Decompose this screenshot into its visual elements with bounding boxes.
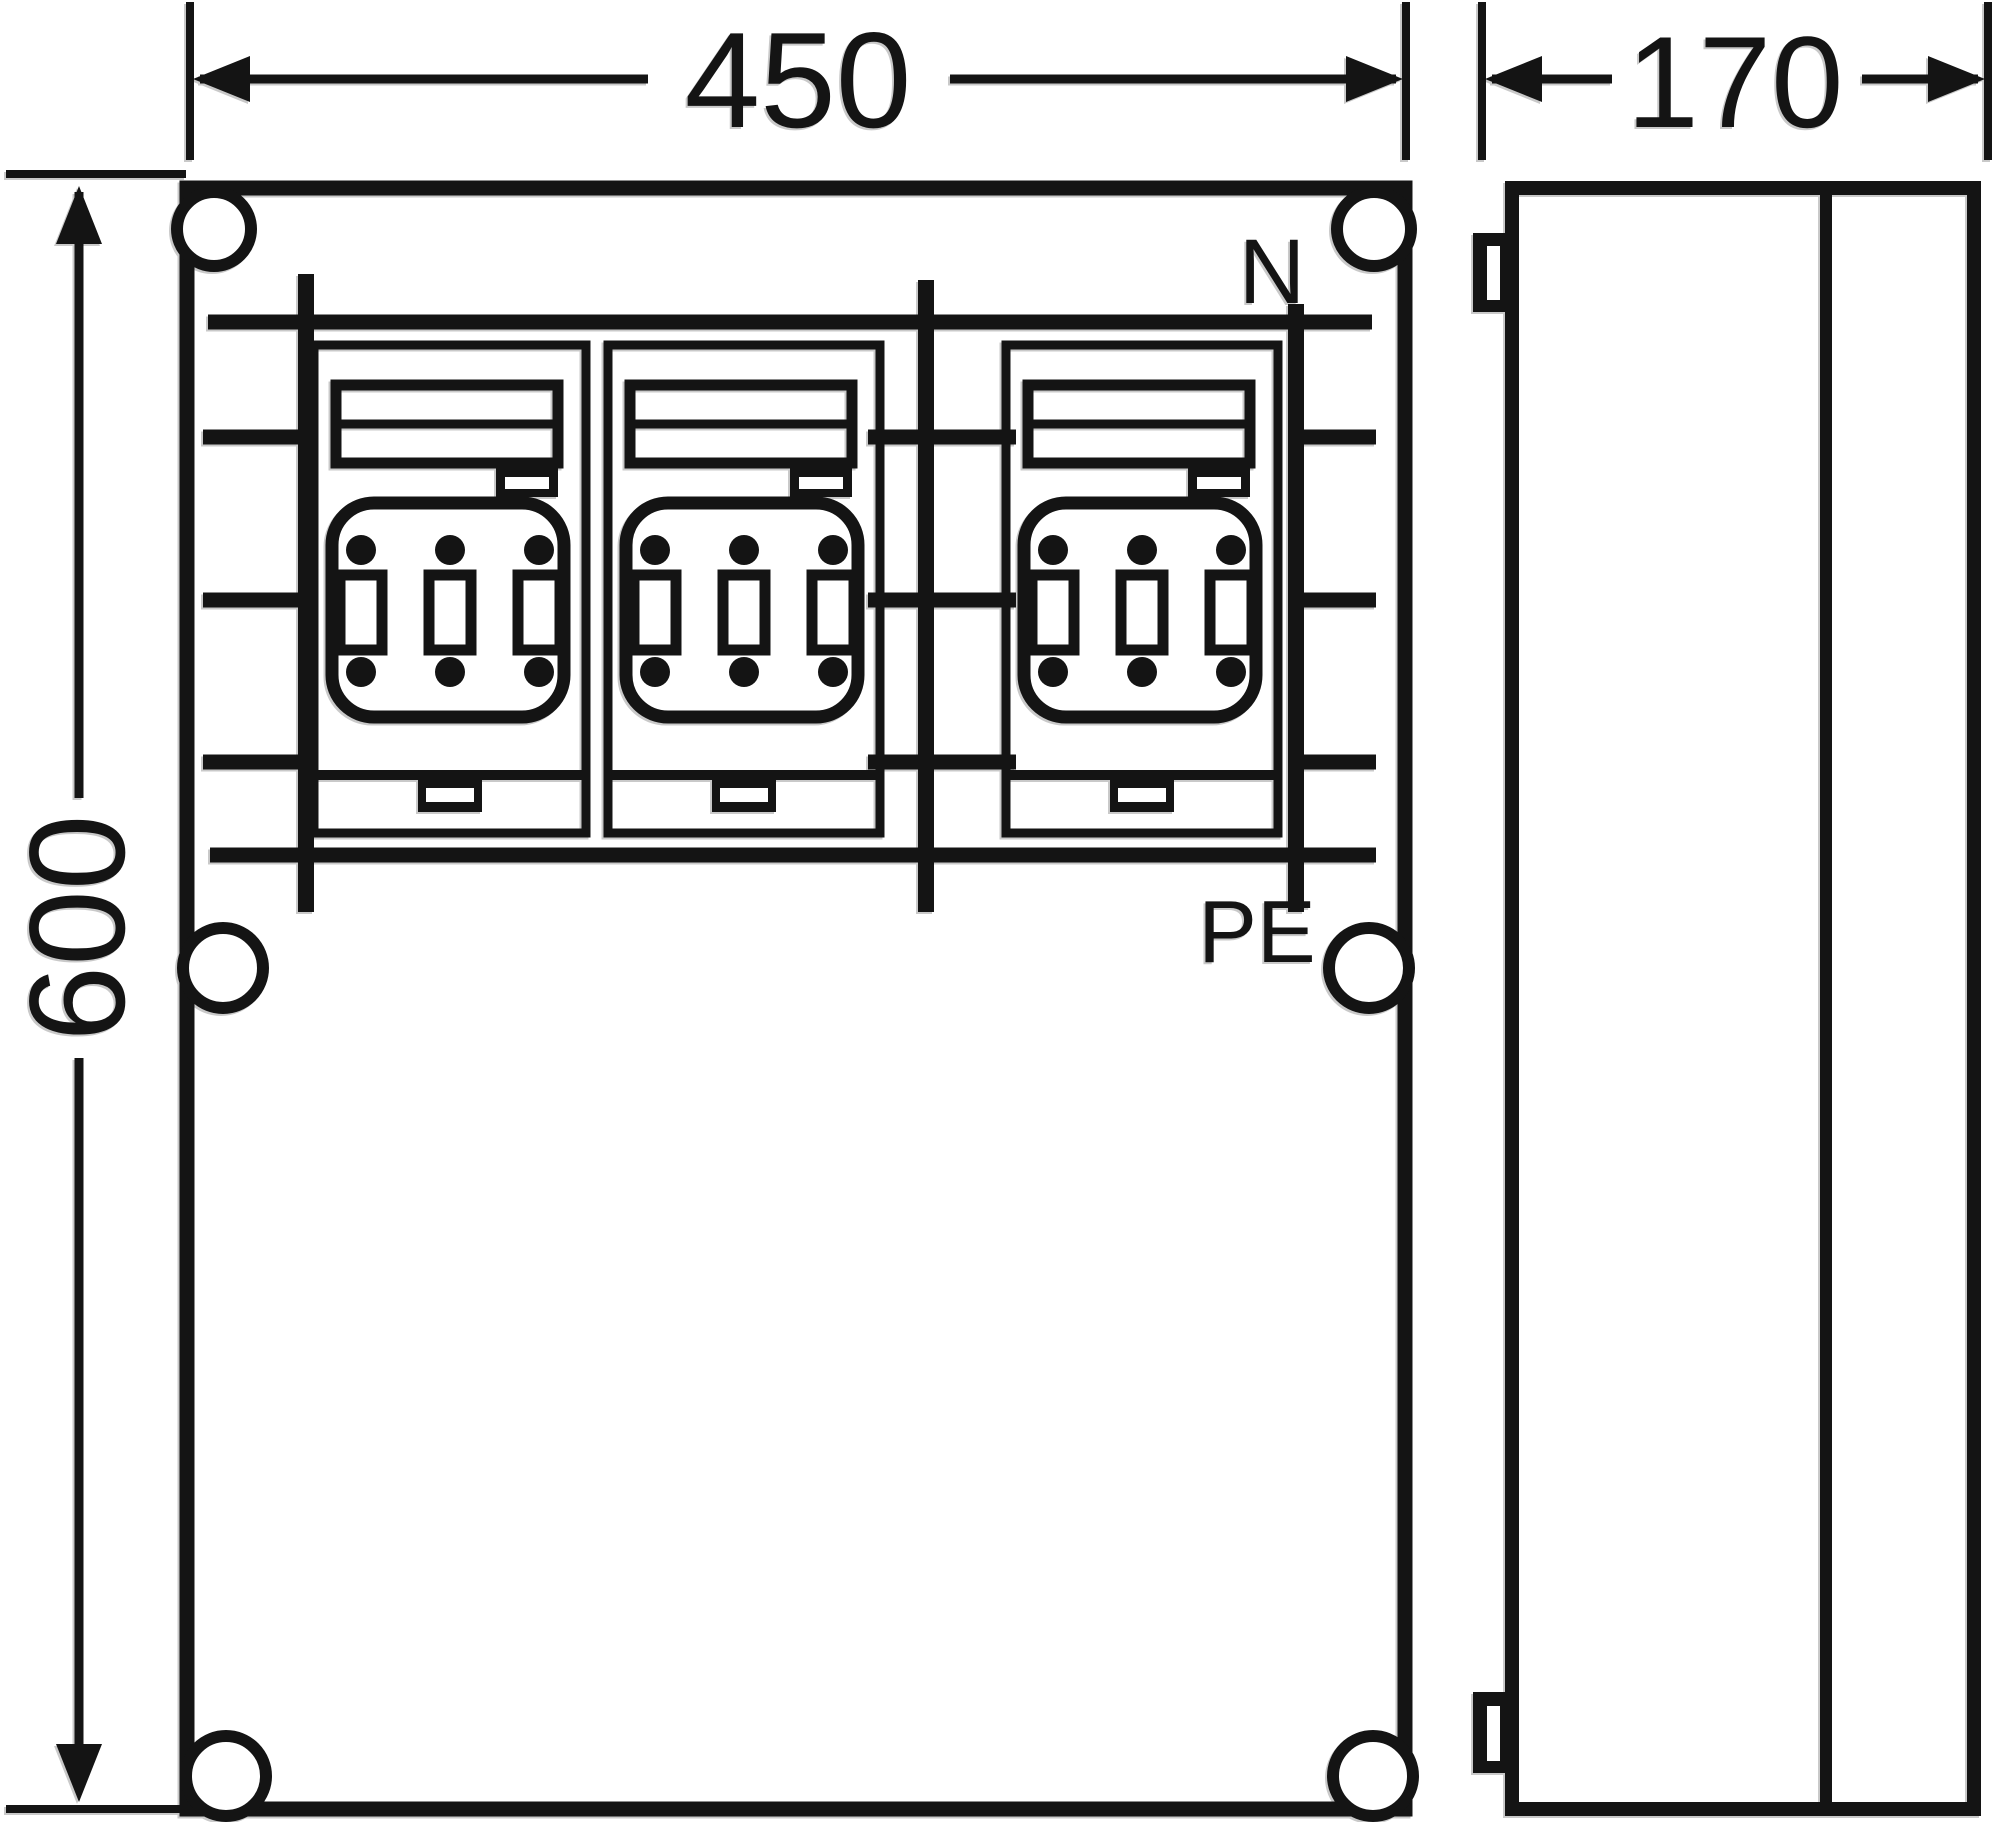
- fuse-slot: [518, 575, 560, 650]
- contact-dot: [346, 657, 376, 687]
- contact-dot: [1127, 535, 1157, 565]
- contact-dot: [524, 657, 554, 687]
- contact-dot: [640, 657, 670, 687]
- side-view-outline: [1512, 188, 1974, 1809]
- contact-dot: [1216, 535, 1246, 565]
- mounting-hole-top-right: [1337, 192, 1411, 266]
- mounting-hole-bottom-left: [186, 1736, 266, 1816]
- dimension-width: 450: [190, 2, 1406, 160]
- fuse-slot: [340, 575, 382, 650]
- contact-dot: [524, 535, 554, 565]
- front-view-outline: [187, 188, 1405, 1809]
- dimension-width-label: 450: [685, 4, 912, 156]
- contact-dot: [818, 535, 848, 565]
- contact-dot: [640, 535, 670, 565]
- contact-dot: [1038, 535, 1068, 565]
- contact-dot: [729, 535, 759, 565]
- drawing-sheet: 450 170 600: [0, 0, 2000, 1822]
- arrow-right-icon: [1928, 56, 1985, 102]
- contact-dot: [435, 657, 465, 687]
- pe-terminal-label: PE: [1198, 882, 1315, 981]
- fuse-slot: [1032, 575, 1074, 650]
- mounting-hole-bottom-right: [1333, 1736, 1413, 1816]
- arrow-down-icon: [56, 1744, 102, 1802]
- cover-latch-slot: [505, 477, 549, 489]
- dimension-depth-label: 170: [1627, 9, 1844, 155]
- side-latch-top-slot: [1487, 246, 1500, 300]
- mounting-hole-middle-left: [183, 928, 263, 1008]
- side-latch-bottom-slot: [1487, 1706, 1500, 1761]
- contact-dot: [1127, 657, 1157, 687]
- dimension-height-label: 600: [1, 815, 153, 1042]
- mounting-hole-middle-right: [1329, 928, 1409, 1008]
- mounting-foot-slot: [426, 788, 474, 802]
- dimension-depth: 170: [1482, 2, 1988, 160]
- contact-dot: [1038, 657, 1068, 687]
- cover-screws: [177, 192, 1413, 1816]
- fuse-slot: [1210, 575, 1252, 650]
- contact-dot: [435, 535, 465, 565]
- arrow-left-icon: [193, 56, 250, 102]
- arrow-left-icon: [1485, 56, 1542, 102]
- fuse-switch-module: [314, 345, 586, 833]
- contact-dot: [818, 657, 848, 687]
- side-view: [1473, 188, 1974, 1809]
- contact-dot: [346, 535, 376, 565]
- fuse-switch-module: [608, 345, 880, 833]
- cover-latch-slot: [1197, 477, 1241, 489]
- neutral-terminal-label: N: [1239, 221, 1305, 323]
- mounting-foot-slot: [720, 788, 768, 802]
- cover-latch-slot: [799, 477, 843, 489]
- contact-dot: [729, 657, 759, 687]
- arrow-right-icon: [1346, 56, 1403, 102]
- fuse-switch-module: [1006, 345, 1278, 833]
- dimension-height: 600: [1, 174, 186, 1809]
- mounting-hole-top-left: [177, 192, 251, 266]
- fuse-slot: [429, 575, 471, 650]
- technical-drawing-svg: 450 170 600: [0, 0, 2000, 1822]
- mounting-foot-slot: [1118, 788, 1166, 802]
- fuse-slot: [812, 575, 854, 650]
- contact-dot: [1216, 657, 1246, 687]
- fuse-slot: [634, 575, 676, 650]
- fuse-slot: [723, 575, 765, 650]
- fuse-slot: [1121, 575, 1163, 650]
- arrow-up-icon: [56, 186, 102, 244]
- front-view: N PE: [177, 188, 1413, 1816]
